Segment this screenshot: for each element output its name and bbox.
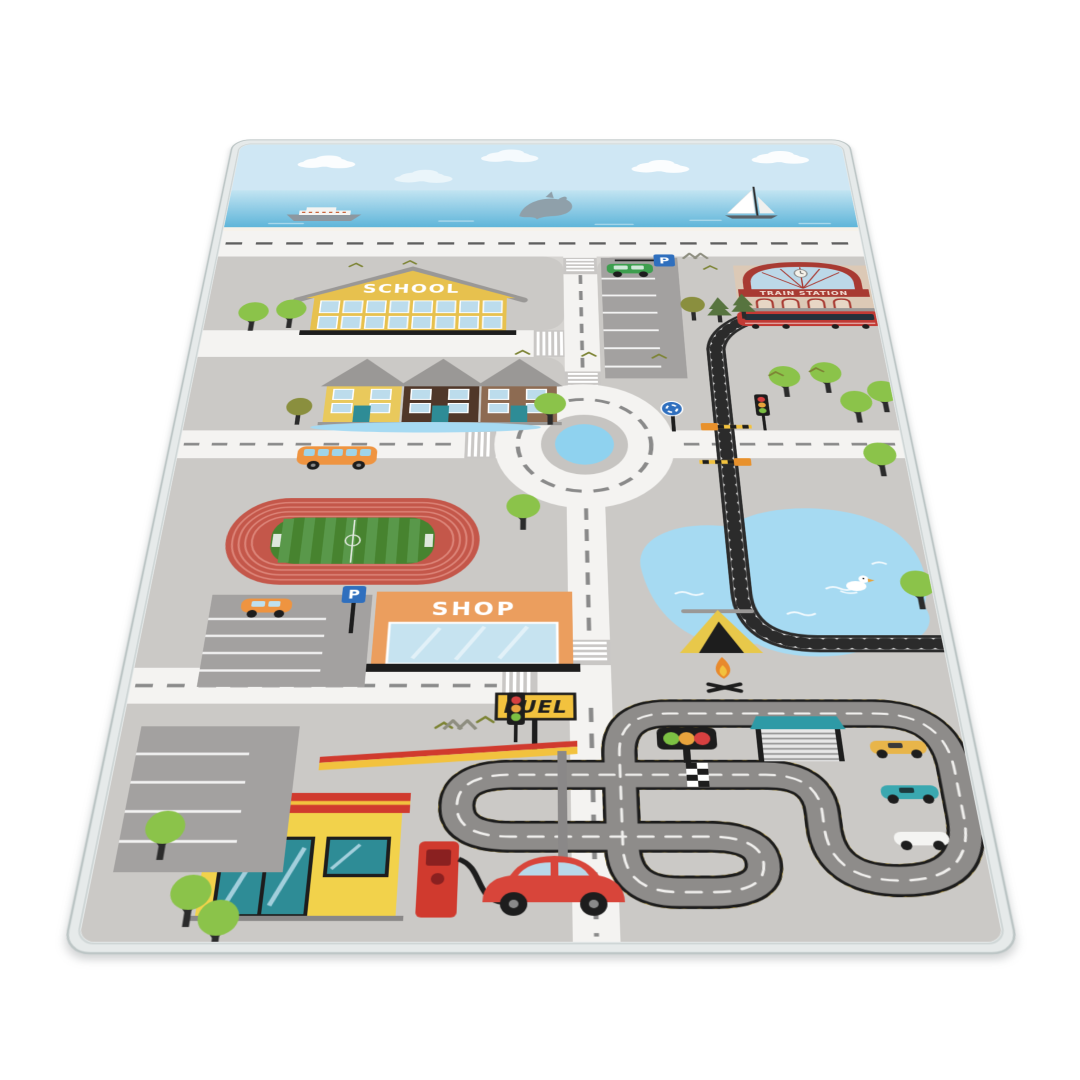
shop-building: SHOP — [363, 592, 580, 672]
play-rug: SCHOOL P — [61, 139, 1021, 955]
train-station: TRAIN STATION — [729, 262, 884, 329]
beach-strip — [223, 227, 858, 231]
sea — [224, 187, 858, 227]
photo-background: SCHOOL P — [0, 0, 1080, 1080]
school-label: SCHOOL — [362, 282, 460, 296]
svg-text:P: P — [659, 255, 670, 265]
svg-text:P: P — [347, 589, 360, 602]
train-station-label: TRAIN STATION — [759, 290, 848, 297]
shop-label: SHOP — [431, 598, 516, 619]
pond — [310, 422, 541, 432]
parking-lot-bottom — [113, 726, 300, 872]
stadium — [218, 498, 481, 585]
coastal-road — [218, 231, 864, 257]
parking-lot-top: P — [601, 254, 688, 378]
parking-lot-shop: P — [197, 586, 374, 687]
checkered-start-line — [686, 763, 710, 787]
race-garage — [749, 716, 851, 761]
sky — [232, 145, 851, 191]
